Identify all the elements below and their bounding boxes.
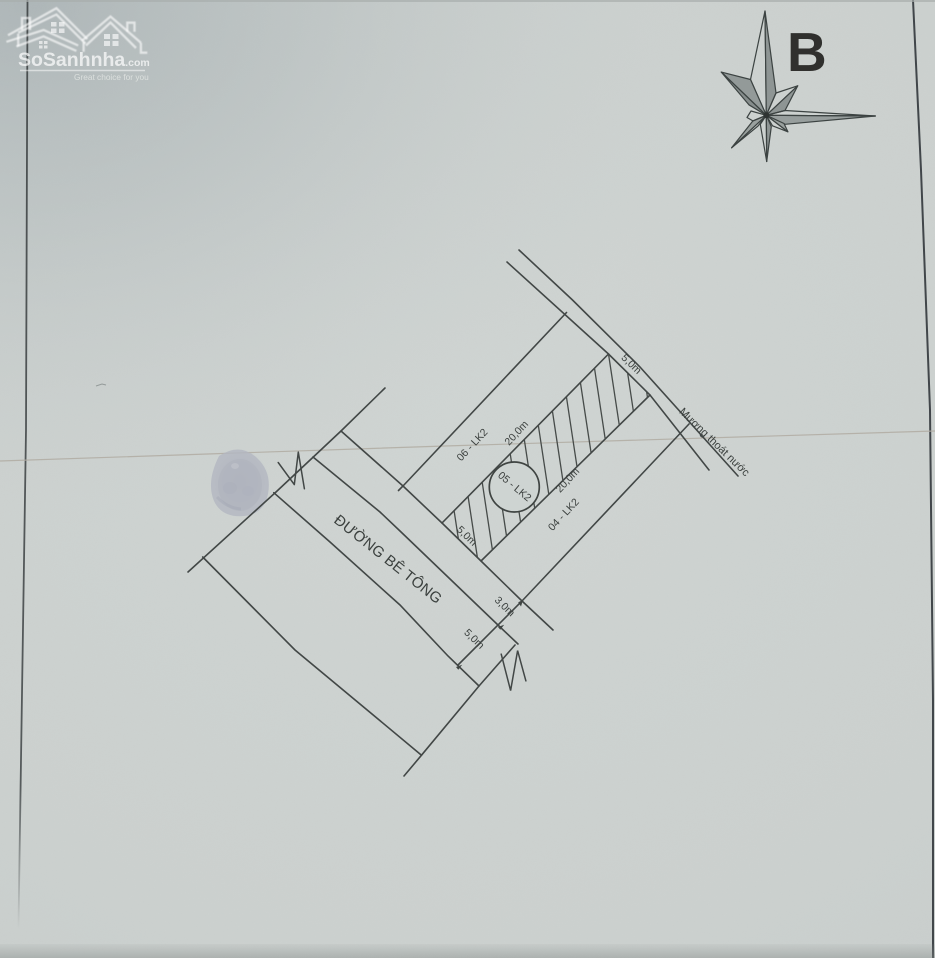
svg-text:Great choice for you: Great choice for you: [74, 72, 149, 82]
svg-text:B: B: [787, 21, 827, 83]
